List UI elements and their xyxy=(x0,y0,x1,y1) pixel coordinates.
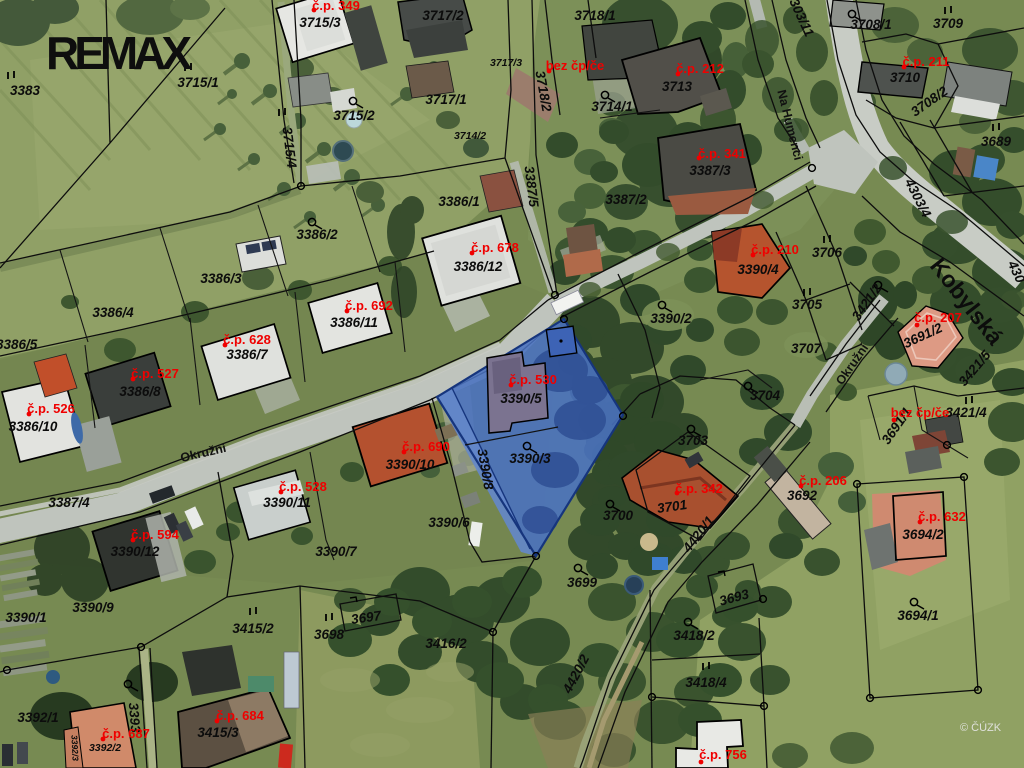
svg-text:3416/2: 3416/2 xyxy=(425,636,467,651)
svg-text:bez čp/če: bez čp/če xyxy=(546,58,605,73)
svg-text:3392/1: 3392/1 xyxy=(17,710,58,725)
svg-text:3390/1: 3390/1 xyxy=(5,610,46,625)
svg-text:3714/2: 3714/2 xyxy=(454,130,486,142)
svg-text:3706: 3706 xyxy=(812,245,843,260)
svg-text:č.p. 526: č.p. 526 xyxy=(27,401,75,416)
svg-text:č.p. 756: č.p. 756 xyxy=(699,747,747,762)
svg-text:3386/7: 3386/7 xyxy=(226,347,269,362)
svg-text:č.p. 632: č.p. 632 xyxy=(918,509,966,524)
svg-text:3390/4: 3390/4 xyxy=(737,262,779,277)
svg-text:č.p. 342: č.p. 342 xyxy=(675,481,723,496)
svg-text:3386/4: 3386/4 xyxy=(92,305,134,320)
svg-text:3689: 3689 xyxy=(981,134,1012,149)
svg-text:3386/10: 3386/10 xyxy=(9,419,58,434)
svg-text:3387/2: 3387/2 xyxy=(605,192,647,207)
svg-text:3703: 3703 xyxy=(678,433,709,448)
svg-text:č.p. 207: č.p. 207 xyxy=(914,310,962,325)
svg-text:č.p. 684: č.p. 684 xyxy=(216,708,264,723)
svg-text:3387/3: 3387/3 xyxy=(689,163,731,178)
svg-text:3390/9: 3390/9 xyxy=(72,600,114,615)
svg-text:č.p. 527: č.p. 527 xyxy=(131,366,179,381)
svg-text:3699: 3699 xyxy=(567,575,598,590)
svg-text:3383: 3383 xyxy=(10,83,41,98)
svg-text:3713: 3713 xyxy=(662,79,693,94)
svg-text:č.p. 687: č.p. 687 xyxy=(102,726,150,741)
svg-text:3386/1: 3386/1 xyxy=(438,194,479,209)
svg-text:3386/2: 3386/2 xyxy=(296,227,338,242)
svg-text:3418/2: 3418/2 xyxy=(673,628,715,643)
svg-text:3390/12: 3390/12 xyxy=(111,544,160,559)
svg-text:3705: 3705 xyxy=(792,297,823,312)
svg-text:3700: 3700 xyxy=(603,508,634,523)
svg-text:3415/2: 3415/2 xyxy=(232,621,274,636)
svg-text:3709: 3709 xyxy=(933,16,964,31)
svg-text:3421/4: 3421/4 xyxy=(945,405,987,420)
svg-text:č.p. 628: č.p. 628 xyxy=(223,332,271,347)
svg-text:č.p. 341: č.p. 341 xyxy=(698,146,746,161)
svg-text:REMAX: REMAX xyxy=(46,27,192,79)
svg-text:3707: 3707 xyxy=(791,341,823,356)
svg-text:© ČÚZK: © ČÚZK xyxy=(960,721,1002,734)
svg-text:bez čp/če: bez čp/če xyxy=(891,405,950,420)
svg-text:3717/1: 3717/1 xyxy=(425,92,466,107)
svg-text:č.p. 212: č.p. 212 xyxy=(676,61,724,76)
svg-text:3704: 3704 xyxy=(750,388,781,403)
svg-text:3390/5: 3390/5 xyxy=(500,391,542,406)
svg-text:3692: 3692 xyxy=(787,488,818,503)
svg-text:č.p. 528: č.p. 528 xyxy=(279,479,327,494)
svg-text:3708/1: 3708/1 xyxy=(850,17,891,32)
svg-text:č.p. 210: č.p. 210 xyxy=(751,242,799,257)
svg-text:3694/2: 3694/2 xyxy=(902,527,944,542)
svg-text:č.p. 594: č.p. 594 xyxy=(131,527,179,542)
svg-text:3715/3: 3715/3 xyxy=(299,15,341,30)
svg-text:3390/10: 3390/10 xyxy=(386,457,435,472)
svg-text:č.p. 206: č.p. 206 xyxy=(799,473,847,488)
svg-text:3390/3: 3390/3 xyxy=(509,451,551,466)
svg-text:3717/2: 3717/2 xyxy=(422,8,464,23)
svg-text:3386/8: 3386/8 xyxy=(119,384,161,399)
svg-text:3698: 3698 xyxy=(314,627,345,642)
svg-text:č.p. 530: č.p. 530 xyxy=(509,372,557,387)
svg-text:3392/3: 3392/3 xyxy=(69,735,80,762)
svg-text:3718/1: 3718/1 xyxy=(574,8,615,23)
svg-text:č.p. 211: č.p. 211 xyxy=(903,54,950,69)
svg-text:3392/2: 3392/2 xyxy=(89,742,121,754)
svg-text:č.p. 690: č.p. 690 xyxy=(402,439,450,454)
svg-text:3415/3: 3415/3 xyxy=(197,725,239,740)
svg-text:č.p. 692: č.p. 692 xyxy=(345,298,393,313)
svg-text:3386/5: 3386/5 xyxy=(0,337,38,352)
svg-text:č.p. 678: č.p. 678 xyxy=(471,240,519,255)
svg-text:3386/3: 3386/3 xyxy=(200,271,242,286)
svg-text:3715/2: 3715/2 xyxy=(333,108,375,123)
svg-text:3694/1: 3694/1 xyxy=(897,608,938,623)
svg-text:3386/12: 3386/12 xyxy=(454,259,503,274)
svg-text:3418/4: 3418/4 xyxy=(685,675,727,690)
svg-text:3390/6: 3390/6 xyxy=(428,515,470,530)
svg-text:3390/11: 3390/11 xyxy=(263,495,311,510)
svg-text:3390/2: 3390/2 xyxy=(650,311,692,326)
svg-text:3717/3: 3717/3 xyxy=(490,57,522,69)
svg-text:3710: 3710 xyxy=(890,70,921,85)
svg-text:č.p. 349: č.p. 349 xyxy=(312,0,360,13)
svg-text:3390/7: 3390/7 xyxy=(315,544,358,559)
svg-text:3714/1: 3714/1 xyxy=(591,99,632,114)
svg-text:3386/11: 3386/11 xyxy=(330,315,378,330)
svg-text:3387/4: 3387/4 xyxy=(48,495,90,510)
